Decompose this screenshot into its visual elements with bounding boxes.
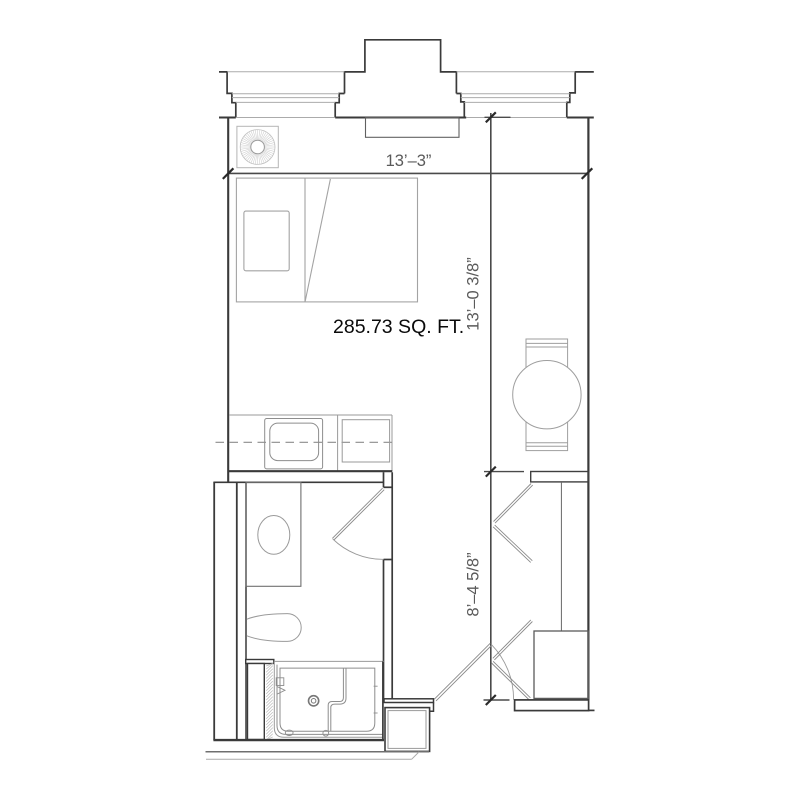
svg-text:8’–4 5/8”: 8’–4 5/8” bbox=[465, 552, 483, 616]
svg-text:13’–3”: 13’–3” bbox=[386, 152, 432, 170]
svg-text:285.73 SQ. FT.: 285.73 SQ. FT. bbox=[333, 316, 464, 338]
svg-text:13’–0 3/8”: 13’–0 3/8” bbox=[465, 257, 483, 330]
